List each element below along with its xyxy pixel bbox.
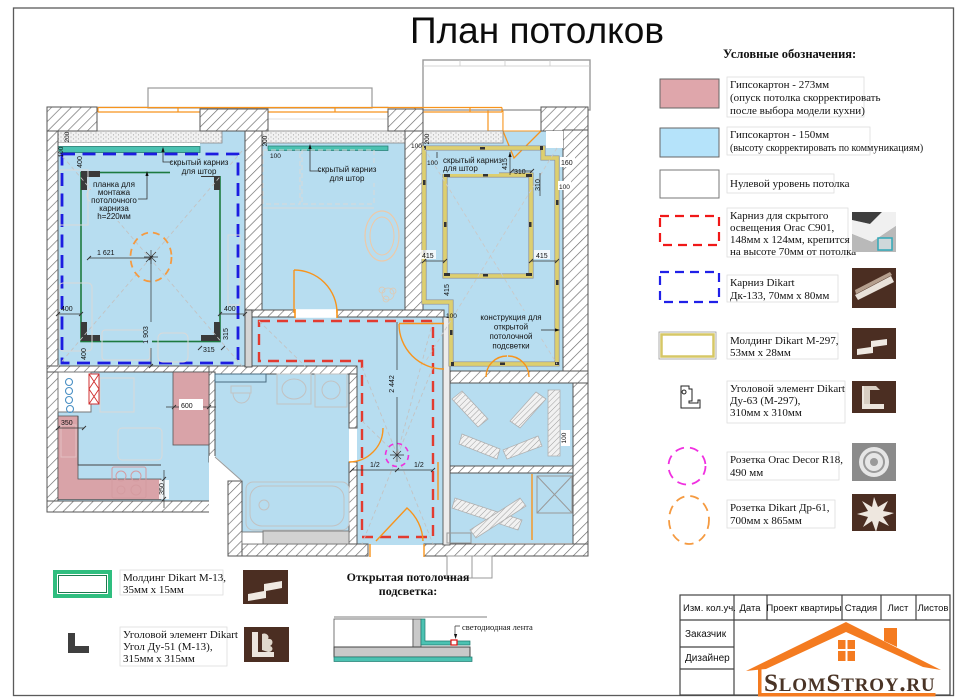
svg-text:600: 600	[181, 403, 193, 410]
svg-text:Дата: Дата	[739, 603, 761, 614]
svg-text:100: 100	[561, 432, 568, 443]
svg-text:на высоте 70мм от потолка: на высоте 70мм от потолка	[730, 246, 856, 258]
svg-text:Уголовой элемент Dikart: Уголовой элемент Dikart	[123, 629, 238, 641]
svg-text:700мм х 865мм: 700мм х 865мм	[730, 515, 802, 527]
svg-text:100: 100	[270, 153, 281, 160]
svg-text:100: 100	[58, 146, 65, 157]
svg-text:(опуск потолка скорректировать: (опуск потолка скорректировать	[730, 92, 881, 104]
svg-text:Изм. кол.уч.: Изм. кол.уч.	[683, 603, 736, 614]
svg-text:Молдинг Dikart М-297,: Молдинг Dikart М-297,	[730, 335, 839, 347]
svg-text:Листов: Листов	[918, 603, 949, 614]
svg-text:350: 350	[159, 483, 166, 495]
svg-text:100: 100	[411, 143, 422, 150]
svg-text:Розетка Dikart Др-61,: Розетка Dikart Др-61,	[730, 502, 830, 514]
svg-text:400: 400	[81, 348, 88, 360]
svg-text:53мм х 28мм: 53мм х 28мм	[730, 347, 791, 359]
svg-text:Гипсокартон - 150мм: Гипсокартон - 150мм	[730, 129, 829, 141]
svg-text:415: 415	[536, 253, 548, 260]
svg-text:1 621: 1 621	[97, 250, 115, 257]
svg-text:Уголовой элемент Dikart: Уголовой элемент Dikart	[730, 383, 845, 395]
svg-text:Проект квартиры: Проект квартиры	[766, 603, 841, 614]
svg-text:400: 400	[61, 306, 73, 313]
svg-text:Розетка Orac Decor R18,: Розетка Orac Decor R18,	[730, 454, 843, 466]
svg-text:открытой: открытой	[494, 323, 528, 332]
svg-text:Дк-133, 70мм х 80мм: Дк-133, 70мм х 80мм	[730, 290, 829, 302]
svg-text:для штор: для штор	[330, 174, 365, 183]
svg-text:310: 310	[535, 179, 542, 191]
svg-text:35мм х 15мм: 35мм х 15мм	[123, 584, 184, 596]
svg-text:(высоту скорректировать по ком: (высоту скорректировать по коммуникациям…	[730, 143, 923, 154]
svg-text:160: 160	[561, 160, 573, 167]
svg-text:2 442: 2 442	[389, 375, 396, 393]
svg-text:для штор: для штор	[182, 167, 217, 176]
svg-text:Молдинг Dikart М-13,: Молдинг Dikart М-13,	[123, 572, 226, 584]
svg-text:освещения Orac C901,: освещения Orac C901,	[730, 222, 835, 234]
svg-text:148мм х 124мм, крепится: 148мм х 124мм, крепится	[730, 234, 850, 246]
svg-text:Карниз Dikart: Карниз Dikart	[730, 277, 795, 289]
svg-text:1 903: 1 903	[143, 326, 150, 344]
svg-text:100: 100	[446, 313, 457, 320]
svg-text:Ду-63 (М-297),: Ду-63 (М-297),	[730, 395, 801, 407]
svg-text:415: 415	[444, 284, 451, 296]
svg-text:подсветки: подсветки	[492, 342, 529, 351]
svg-text:светодиодная лента: светодиодная лента	[462, 622, 533, 632]
svg-text:315мм х 315мм: 315мм х 315мм	[123, 653, 195, 665]
svg-text:100: 100	[559, 184, 570, 191]
svg-text:План потолков: План потолков	[410, 10, 664, 51]
svg-text:потолочной: потолочной	[490, 332, 533, 341]
svg-text:после выбора модели кухни): после выбора модели кухни)	[730, 105, 865, 117]
svg-text:100: 100	[427, 160, 438, 167]
svg-text:подсветка:: подсветка:	[379, 584, 437, 598]
svg-text:1/2: 1/2	[414, 462, 424, 469]
svg-text:скрытый карниз: скрытый карниз	[170, 158, 229, 167]
svg-text:400: 400	[77, 156, 84, 168]
svg-text:Дизайнер: Дизайнер	[685, 653, 730, 664]
svg-text:Заказчик: Заказчик	[685, 629, 727, 640]
svg-text:Стадия: Стадия	[845, 603, 877, 614]
svg-text:415: 415	[502, 158, 509, 170]
svg-text:Открытая потолочная: Открытая потолочная	[347, 570, 470, 584]
svg-text:для штор: для штор	[443, 164, 478, 173]
svg-text:1/2: 1/2	[370, 462, 380, 469]
svg-text:400: 400	[224, 306, 236, 313]
svg-text:200: 200	[64, 131, 71, 142]
svg-text:Карниз для скрытого: Карниз для скрытого	[730, 210, 829, 222]
svg-text:Нулевой уровень потолка: Нулевой уровень потолка	[730, 178, 850, 190]
svg-text:415: 415	[422, 253, 434, 260]
svg-text:200: 200	[262, 135, 269, 146]
svg-text:Лист: Лист	[888, 603, 909, 614]
svg-text:скрытый карниз: скрытый карниз	[318, 165, 377, 174]
svg-text:315: 315	[203, 347, 215, 354]
svg-text:350: 350	[61, 420, 73, 427]
svg-text:Угол Ду-51 (М-13),: Угол Ду-51 (М-13),	[123, 641, 213, 653]
svg-text:Условные обозначения:: Условные обозначения:	[723, 47, 856, 61]
svg-text:490 мм: 490 мм	[730, 467, 763, 479]
svg-text:310: 310	[514, 169, 526, 176]
svg-text:315: 315	[223, 328, 230, 340]
svg-text:200: 200	[424, 133, 431, 144]
svg-text:h=220мм: h=220мм	[97, 212, 130, 221]
svg-text:SLOMSTROY.RU: SLOMSTROY.RU	[764, 670, 935, 697]
svg-text:Гипсокартон - 273мм: Гипсокартон - 273мм	[730, 79, 829, 91]
svg-text:310мм х 310мм: 310мм х 310мм	[730, 407, 802, 419]
svg-text:конструкция для: конструкция для	[480, 313, 541, 322]
